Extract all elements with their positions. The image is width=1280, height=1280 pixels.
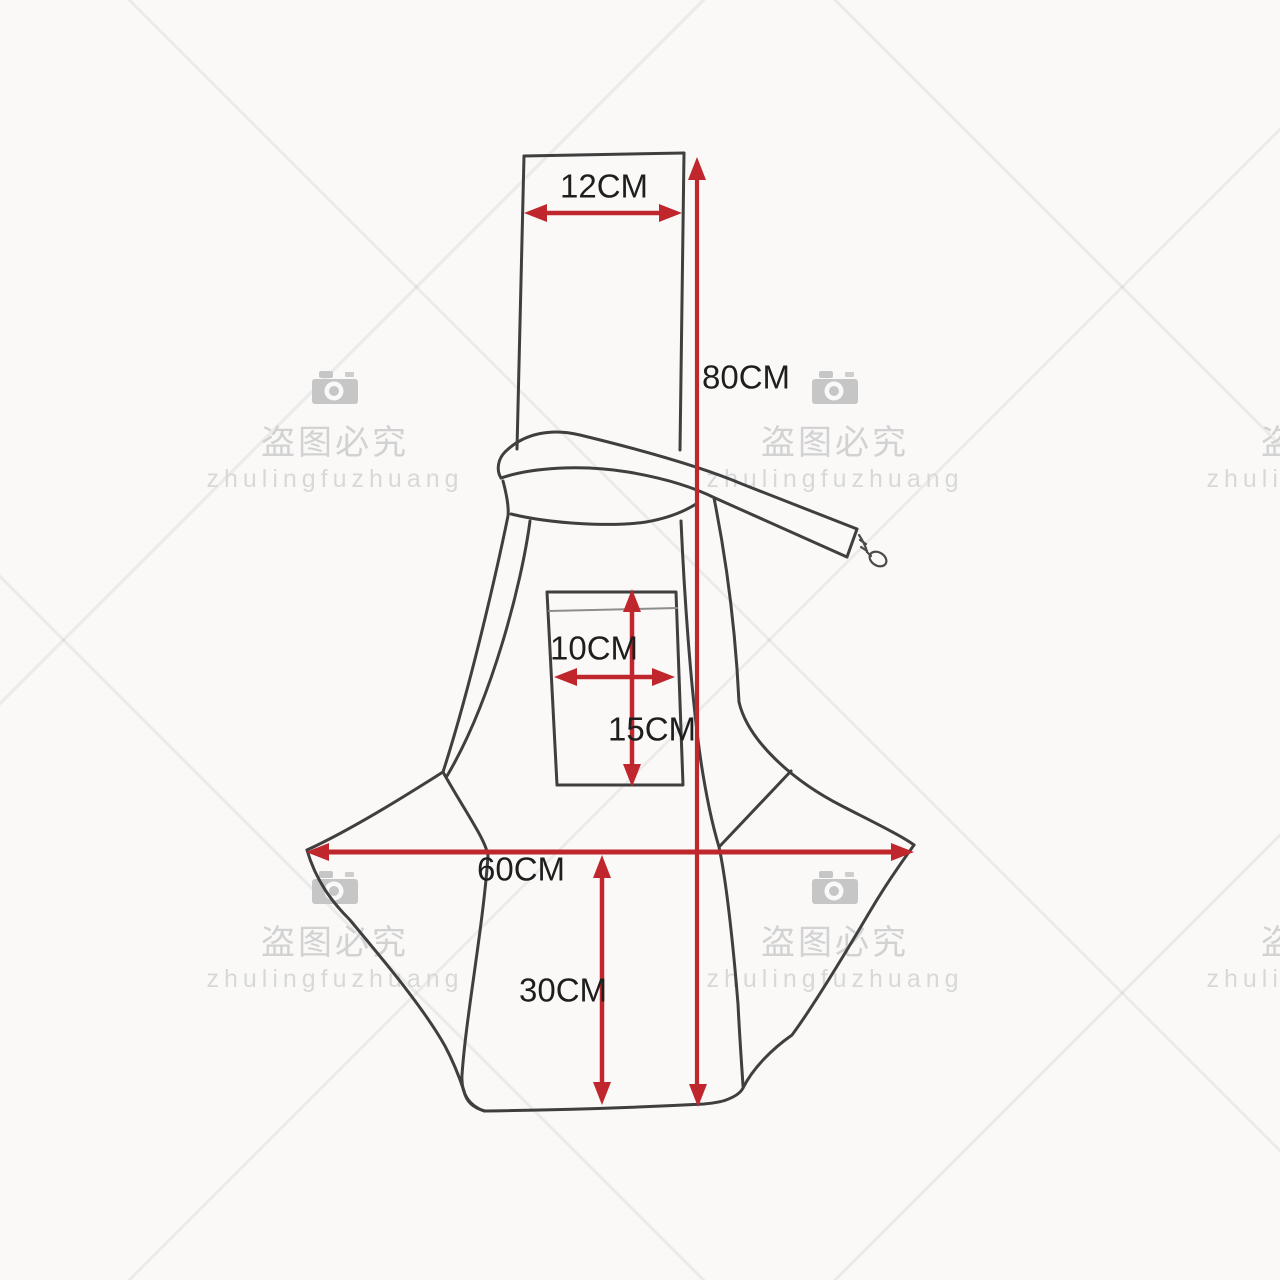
dim-arrow-pocket-width-10cm	[554, 668, 675, 686]
dim-arrow-strap-width-12cm	[524, 204, 682, 222]
dim-label-bottom-height: 30CM	[519, 974, 607, 1007]
dim-label-pocket-height: 15CM	[608, 713, 696, 746]
front-pocket-outline	[547, 592, 683, 785]
dim-arrow-pocket-height-15cm	[623, 589, 641, 787]
dim-arrow-bag-width-60cm	[306, 843, 914, 861]
bag-body-outline	[307, 481, 914, 1111]
product-dimension-diagram: 盗图必究 zhulingfuzhuang 盗图必究 zhulingfuzhuan…	[0, 0, 1280, 1280]
dim-label-bag-width: 60CM	[477, 853, 565, 886]
dim-label-pocket-width: 10CM	[550, 632, 638, 665]
dim-arrow-total-height-80cm	[688, 157, 707, 1107]
dim-label-strap-width: 12CM	[560, 170, 648, 203]
collar-band-outline	[498, 432, 857, 557]
dim-label-total-height: 80CM	[702, 361, 790, 394]
strap-clip-hook	[859, 535, 889, 569]
